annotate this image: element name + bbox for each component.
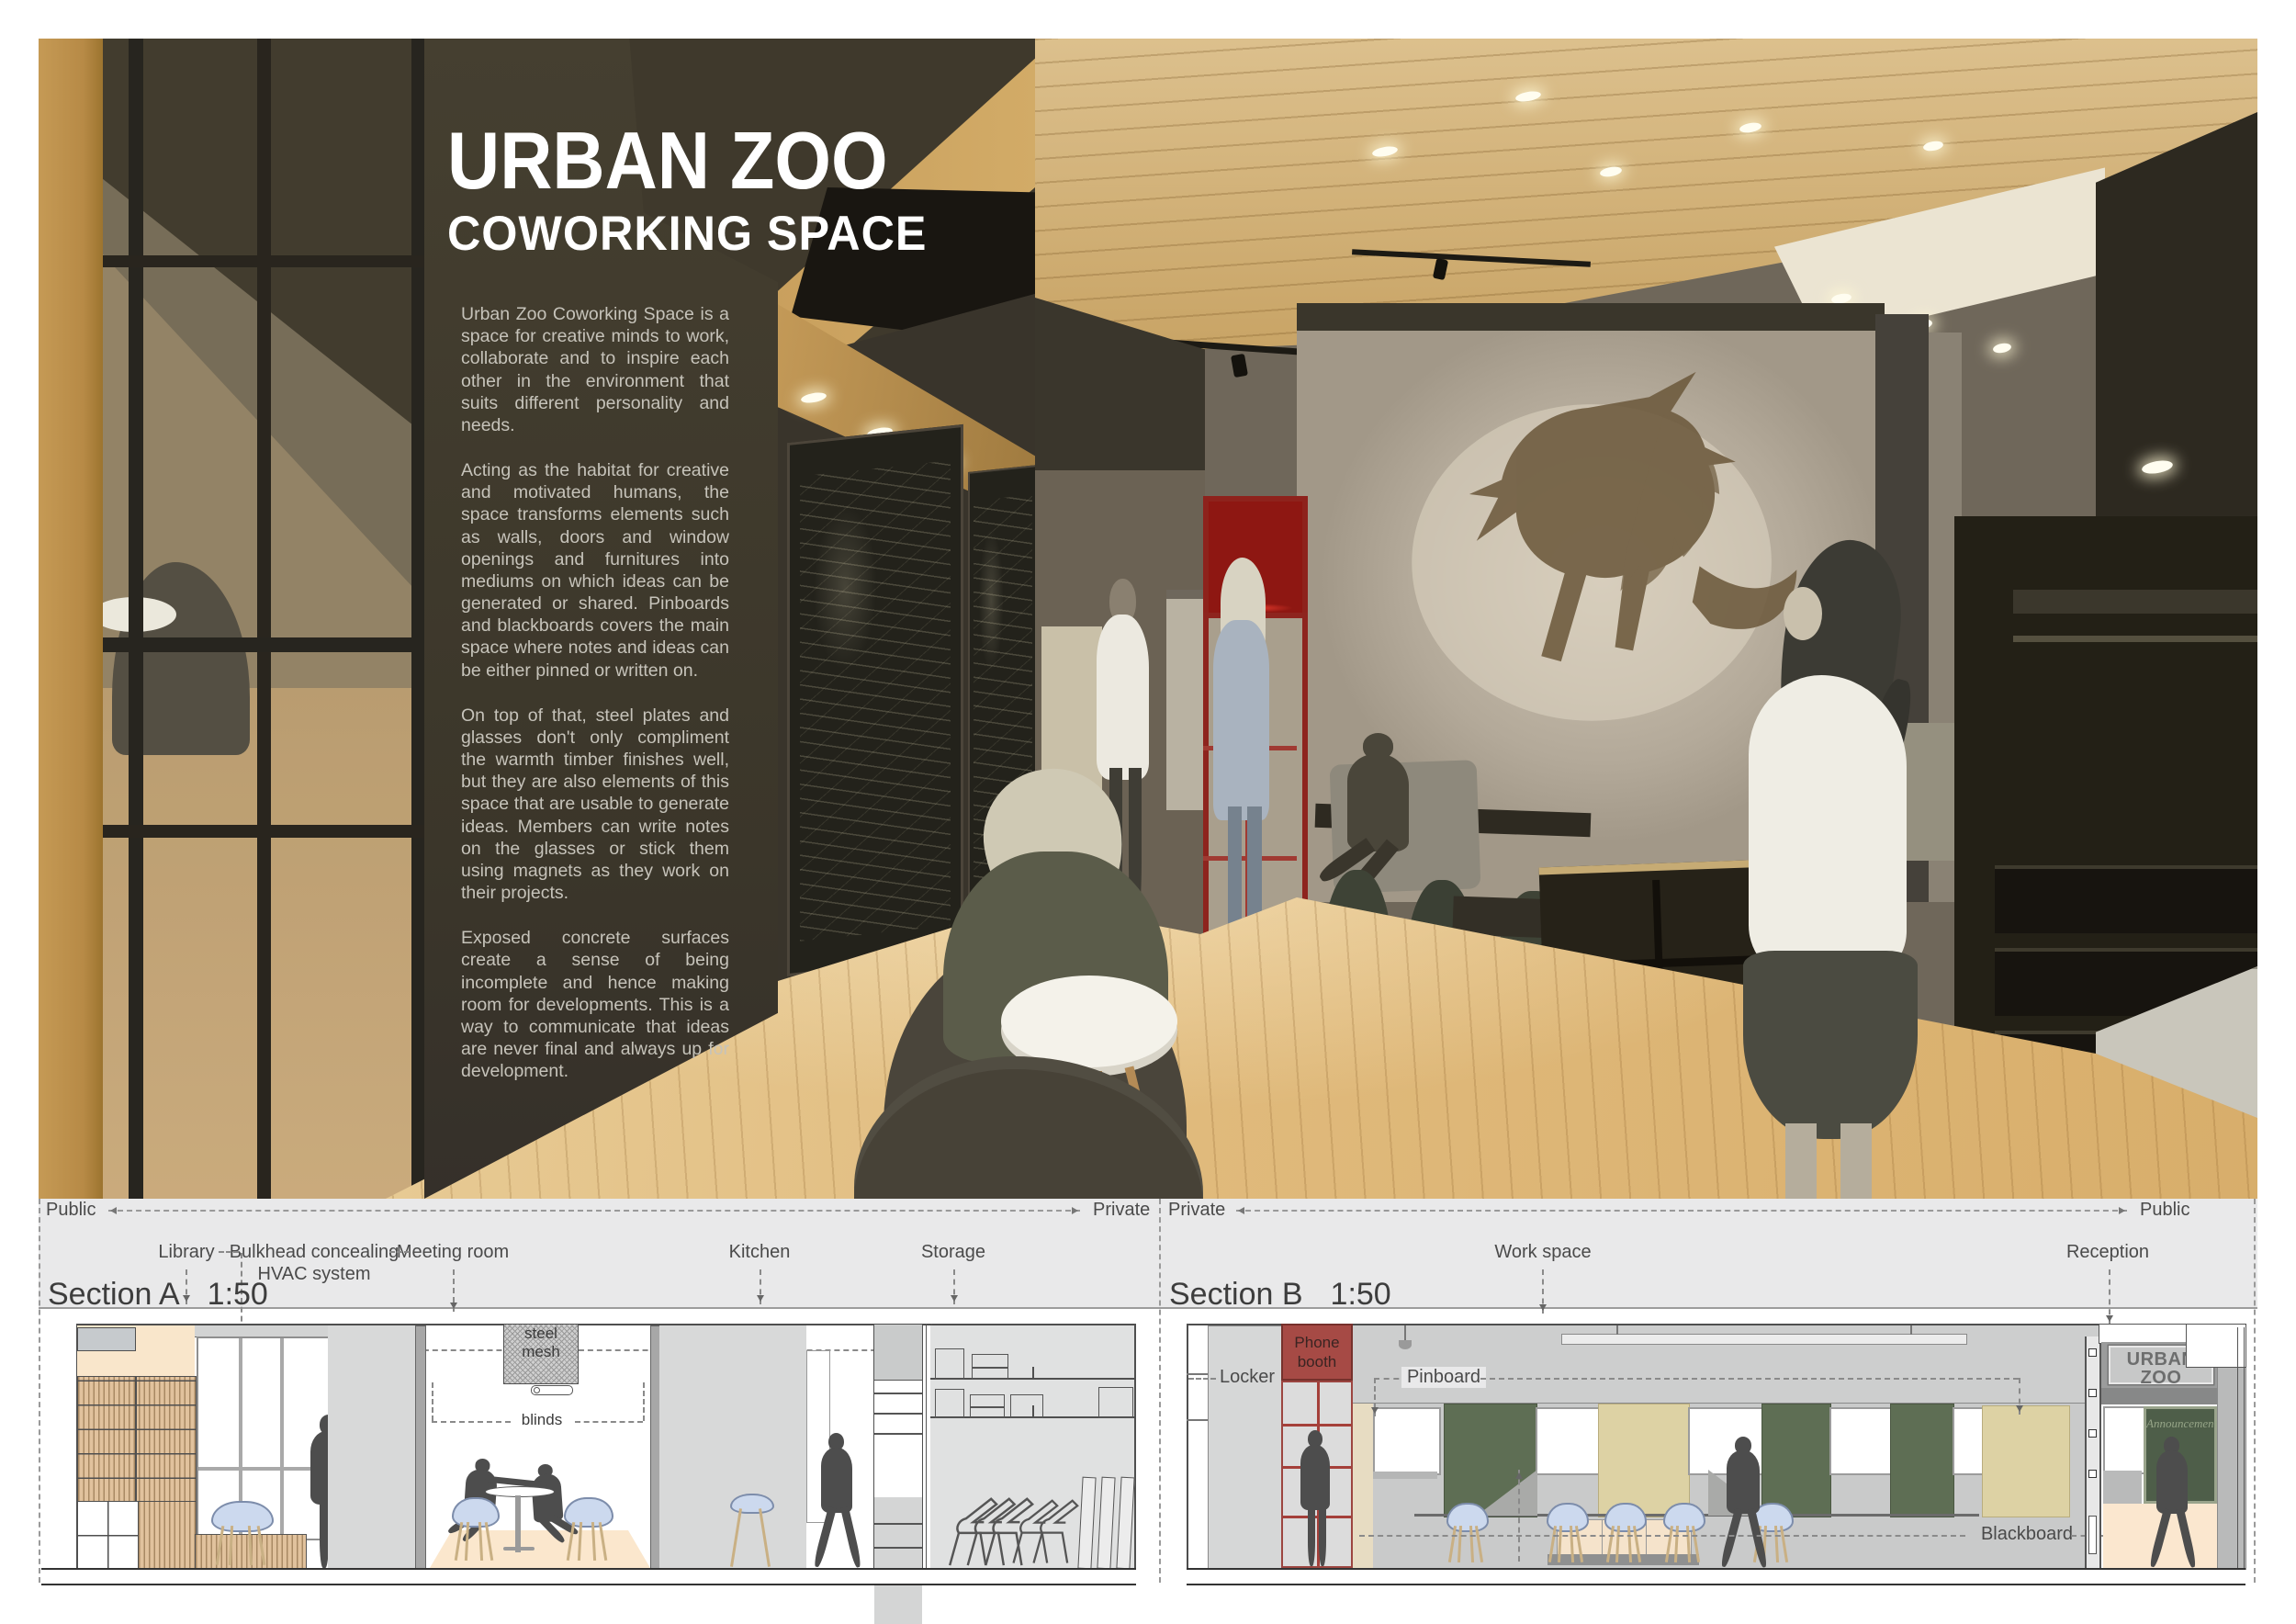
- person-silhouette: [814, 1433, 863, 1569]
- zone-arrow-b: [1236, 1210, 2127, 1212]
- storage-box: [1010, 1394, 1043, 1418]
- section-b-title: Section B1:50: [1169, 1277, 1391, 1313]
- label-library: Library: [158, 1242, 214, 1263]
- label-meeting-room: Meeting room: [397, 1242, 509, 1263]
- library-shelving: [77, 1376, 197, 1503]
- paragraph-1: Urban Zoo Coworking Space is a space for…: [461, 303, 729, 436]
- green-panel: [1761, 1404, 1831, 1517]
- chalkboard-panel: [787, 424, 963, 976]
- lounge-chair-blue: [211, 1501, 270, 1567]
- downlight: [1992, 342, 2011, 354]
- zone-label-private-a: Private: [1093, 1200, 1150, 1221]
- section-a-scale: 1:50: [208, 1277, 268, 1312]
- ceiling-band: [1353, 1325, 2099, 1404]
- storage-box: [935, 1389, 964, 1418]
- section-b-scale: 1:50: [1331, 1277, 1391, 1312]
- label-bulkhead-1: Bulkhead concealing: [230, 1242, 400, 1263]
- zone-arrow-a: [108, 1210, 1080, 1212]
- meeting-chair-blue: [564, 1497, 610, 1562]
- pendant-lamp: [1399, 1340, 1412, 1349]
- paragraph-2: Acting as the habitat for creative and m…: [461, 459, 729, 682]
- storage-box: [935, 1348, 964, 1380]
- round-table-top: [1001, 976, 1177, 1067]
- blinds-label: blinds: [522, 1411, 562, 1429]
- chalkboard-text: Announcements: [2146, 1416, 2214, 1431]
- label-work-space: Work space: [1494, 1242, 1591, 1263]
- kitchen-cabinet: [873, 1324, 923, 1570]
- render-title: URBAN ZOO: [447, 121, 943, 200]
- window: [1373, 1407, 1441, 1475]
- floor-slab: [41, 1568, 1136, 1585]
- glass-partition-room: [103, 39, 424, 1199]
- paragraph-3: On top of that, steel plates and glasses…: [461, 705, 729, 905]
- suspended-light: [1561, 1334, 1967, 1345]
- person-silhouette: [1719, 1437, 1771, 1569]
- zone-label-public-a: Public: [46, 1200, 96, 1221]
- label-kitchen: Kitchen: [729, 1242, 791, 1263]
- foreground-woman: [1725, 539, 1964, 1199]
- pinboard-panel: [1598, 1404, 1690, 1517]
- label-reception: Reception: [2066, 1242, 2149, 1263]
- label-storage: Storage: [921, 1242, 985, 1263]
- bar-stool: [730, 1494, 771, 1567]
- steel-mesh-panel: steel mesh: [503, 1324, 579, 1384]
- window: [1536, 1407, 1602, 1475]
- window: [1829, 1407, 1894, 1475]
- section-a-title: Section A1:50: [48, 1277, 268, 1313]
- locker-wall: [1208, 1325, 1283, 1570]
- pinboard-label: Pinboard: [1401, 1367, 1486, 1388]
- floor-slab: [1187, 1568, 2245, 1585]
- steel-column: [2085, 1336, 2101, 1568]
- meeting-chair-blue: [452, 1497, 496, 1562]
- paragraph-4: Exposed concrete surfaces create a sense…: [461, 927, 729, 1082]
- low-cabinet: [138, 1501, 197, 1570]
- window: [1953, 1407, 1986, 1475]
- steel-mesh-label-1: steel: [504, 1325, 578, 1343]
- track-light: [1231, 354, 1248, 378]
- steel-mesh-label-2: mesh: [504, 1343, 578, 1361]
- phone-booth-label-2: booth: [1283, 1352, 1351, 1371]
- phone-booth-label-1: Phone: [1283, 1333, 1351, 1352]
- cube-seats: [77, 1501, 140, 1570]
- roller-blind: [531, 1385, 573, 1395]
- storage-box: [970, 1394, 1005, 1418]
- workspace-chair: [1547, 1503, 1585, 1563]
- reception-window: [2103, 1406, 2145, 1474]
- blackboard-label: Blackboard: [1974, 1524, 2080, 1545]
- person-in-booth: [1294, 1430, 1340, 1566]
- description-copy: Urban Zoo Coworking Space is a space for…: [461, 303, 729, 1106]
- storage-box: [1098, 1387, 1133, 1418]
- person-silhouette: [2149, 1437, 2199, 1569]
- storage-box: [972, 1354, 1008, 1380]
- hvac-bulkhead: [77, 1327, 136, 1351]
- workspace-chair: [1604, 1503, 1643, 1563]
- presentation-board: URBAN ZOO COWORKING SPACE Urban Zoo Cowo…: [0, 0, 2296, 1624]
- phone-booth-section: Phone booth: [1281, 1324, 1353, 1568]
- workspace-chair: [1446, 1503, 1485, 1563]
- workspace-chair: [1663, 1503, 1702, 1563]
- render-subtitle: COWORKING SPACE: [447, 206, 971, 262]
- title-block: URBAN ZOO COWORKING SPACE: [447, 121, 998, 262]
- locker-label: Locker: [1220, 1367, 1275, 1388]
- cork-wall-strip: [39, 39, 103, 1199]
- zone-label-private-b: Private: [1168, 1200, 1225, 1221]
- label-bulkhead-2: HVAC system: [258, 1264, 371, 1285]
- zone-label-public-b: Public: [2140, 1200, 2189, 1221]
- green-panel: [1890, 1404, 1954, 1517]
- big-pinboard: [1982, 1405, 2070, 1517]
- hero-render: URBAN ZOO COWORKING SPACE Urban Zoo Cowo…: [39, 39, 2257, 1199]
